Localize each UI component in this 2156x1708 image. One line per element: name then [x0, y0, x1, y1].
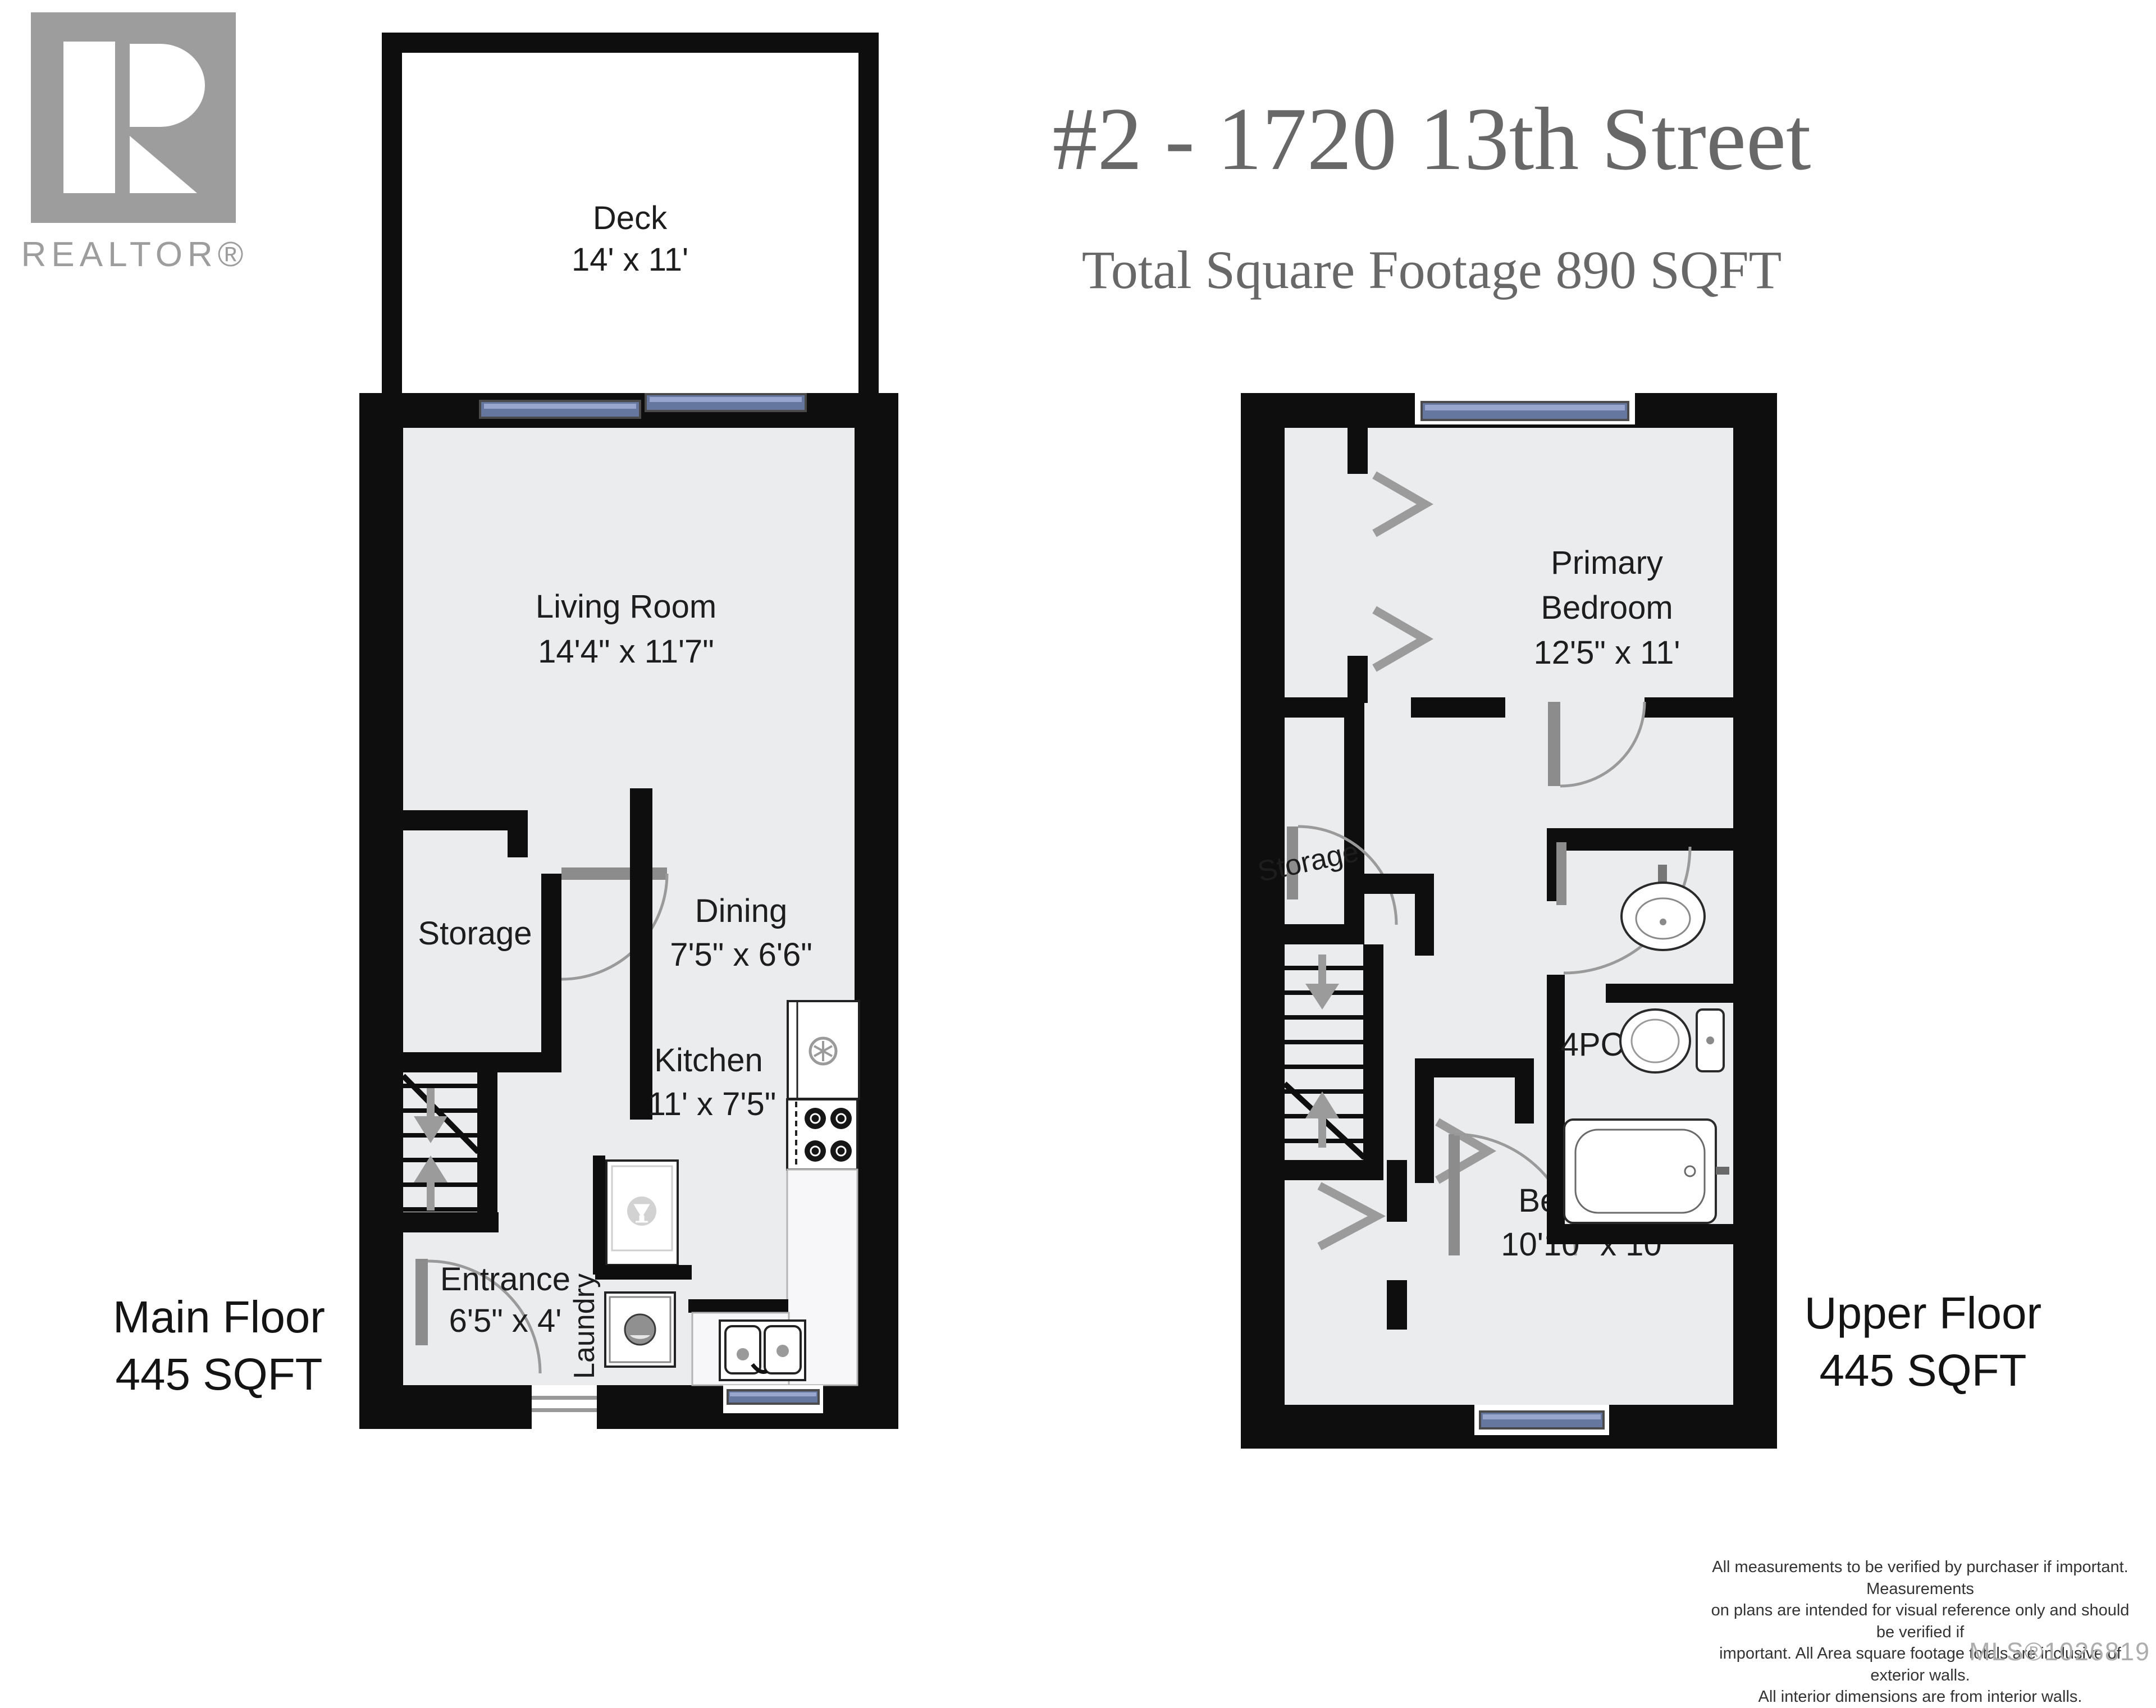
upper-floor-label-line2: 445 SQFT [1788, 1342, 2058, 1399]
bedroom-window [1474, 1405, 1609, 1435]
primary-bedroom-window [1415, 393, 1635, 424]
deck-name: Deck [593, 200, 668, 236]
primary-bedroom-dims: 12'5" x 11' [1534, 634, 1680, 671]
disclaimer-line: on plans are intended for visual referen… [1707, 1600, 2134, 1643]
floorplan-page: { "logo": { "brand": "REALTOR®" }, "head… [0, 0, 2156, 1666]
bathroom-label: 4PC [1561, 1026, 1624, 1063]
kitchen-name: Kitchen [654, 1042, 762, 1079]
stove-icon [787, 1099, 857, 1170]
deck-dims: 14' x 11' [572, 241, 688, 278]
main-floor-plan: Deck 14' x 11' Living Room 14'4" x 11'7"… [314, 22, 954, 1460]
kitchen-dims: 11' x 7'5" [648, 1086, 776, 1122]
realtor-logo [31, 12, 236, 223]
main-floor-label-line2: 445 SQFT [79, 1346, 359, 1403]
fridge-icon [788, 1001, 859, 1099]
main-floor-label-line1: Main Floor [79, 1289, 359, 1346]
entrance-name: Entrance [440, 1261, 570, 1298]
laundry-label: Laundry [568, 1273, 601, 1379]
disclaimer-line: All interior dimensions are from interio… [1707, 1686, 2134, 1708]
bathtub-icon [1564, 1120, 1729, 1223]
kitchen-window [723, 1385, 823, 1413]
washer-icon [605, 1293, 675, 1367]
dining-dims: 7'5" x 6'6" [670, 937, 812, 973]
living-room-name: Living Room [536, 588, 716, 625]
disclaimer-text: All measurements to be verified by purch… [1707, 1556, 2134, 1708]
upper-floor-label: Upper Floor 445 SQFT [1788, 1285, 2058, 1400]
realtor-logo-stem [63, 42, 115, 193]
page-title-address: #2 - 1720 13th Street [876, 87, 1988, 191]
primary-bedroom-label: Primary Bedroom 12'5" x 11' [1534, 545, 1680, 671]
dining-divider-wall [630, 788, 652, 1120]
page-subtitle-sqft: Total Square Footage 890 SQFT [876, 239, 1988, 301]
dining-name: Dining [695, 893, 787, 929]
living-room-dims: 14'4" x 11'7" [538, 633, 714, 670]
realtor-logo-label: REALTOR® [11, 235, 258, 275]
entrance-threshold [532, 1385, 597, 1429]
toilet-icon [1620, 1010, 1724, 1072]
disclaimer-line: All measurements to be verified by purch… [1707, 1556, 2134, 1600]
main-floor-label: Main Floor 445 SQFT [79, 1289, 359, 1404]
primary-bedroom-name1: Primary [1551, 545, 1663, 581]
upper-floor-label-line1: Upper Floor [1788, 1285, 2058, 1342]
entrance-dims: 6'5" x 4' [449, 1303, 562, 1339]
kitchen-sink-icon [720, 1321, 805, 1380]
primary-bedroom-name2: Bedroom [1541, 590, 1673, 626]
deck-label: Deck 14' x 11' [572, 200, 688, 278]
dishwasher-icon [593, 1156, 692, 1280]
main-storage-name: Storage [418, 915, 532, 952]
mls-number: MLS®1026819 [1898, 1637, 2150, 1666]
upper-floor-plan: Primary Bedroom 12'5" x 11' Storage [1224, 365, 1819, 1482]
kitchen-counter-edge [688, 1299, 788, 1313]
